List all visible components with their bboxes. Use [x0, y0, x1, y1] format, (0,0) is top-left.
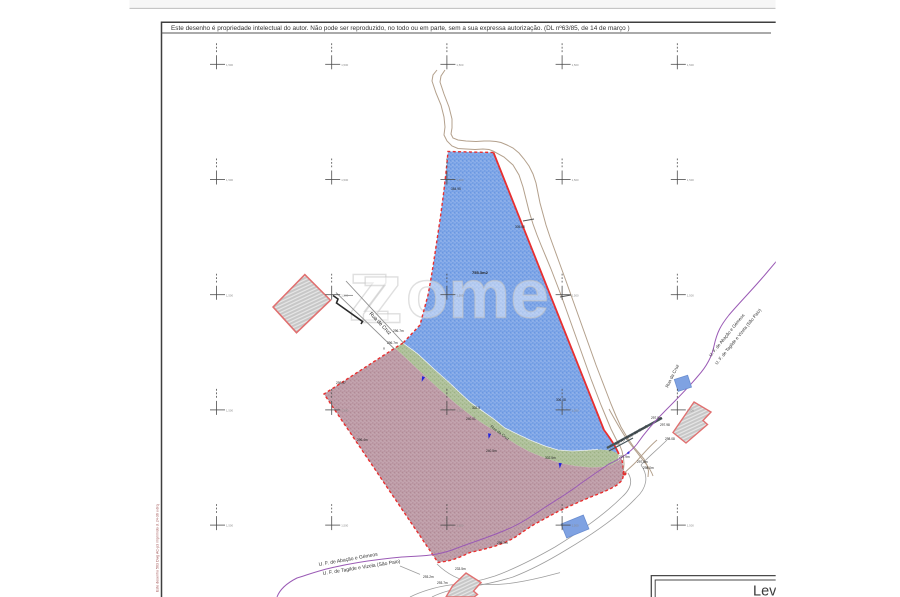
svg-text:Este desenho é propriedade int: Este desenho é propriedade intelectual d…: [171, 25, 630, 32]
svg-text:297.9m: 297.9m: [619, 455, 630, 459]
svg-text:x: x: [383, 346, 385, 351]
svg-text:297.9m: 297.9m: [651, 416, 662, 420]
svg-text:302.5: 302.5: [472, 406, 480, 410]
svg-text:296.7m: 296.7m: [393, 329, 404, 333]
svg-text:298.0m: 298.0m: [643, 466, 654, 470]
svg-text:755.3m2: 755.3m2: [472, 270, 489, 275]
svg-text:240.01: 240.01: [466, 417, 476, 421]
svg-text:233.5m: 233.5m: [455, 567, 466, 571]
svg-text:302.5m: 302.5m: [545, 456, 556, 460]
svg-text:293.2m: 293.2m: [423, 575, 434, 579]
svg-text:306.08: 306.08: [556, 398, 566, 402]
svg-text:298.97: 298.97: [336, 381, 346, 385]
svg-text:240.5m: 240.5m: [486, 449, 497, 453]
svg-text:Este desenho 563 Dwg AC-p3 imp: Este desenho 563 Dwg AC-p3 imprimido d. …: [156, 504, 160, 592]
svg-text:297.98: 297.98: [660, 423, 670, 427]
svg-text:296.4m: 296.4m: [357, 438, 368, 442]
svg-text:296.7m: 296.7m: [387, 341, 398, 345]
svg-text:295.2m: 295.2m: [497, 541, 508, 545]
svg-text:293.7m: 293.7m: [437, 581, 448, 585]
svg-text:298.08: 298.08: [665, 437, 675, 441]
svg-text:297.9m: 297.9m: [637, 460, 648, 464]
svg-text:384.95: 384.95: [451, 187, 461, 191]
svg-text:305.08: 305.08: [515, 225, 525, 229]
